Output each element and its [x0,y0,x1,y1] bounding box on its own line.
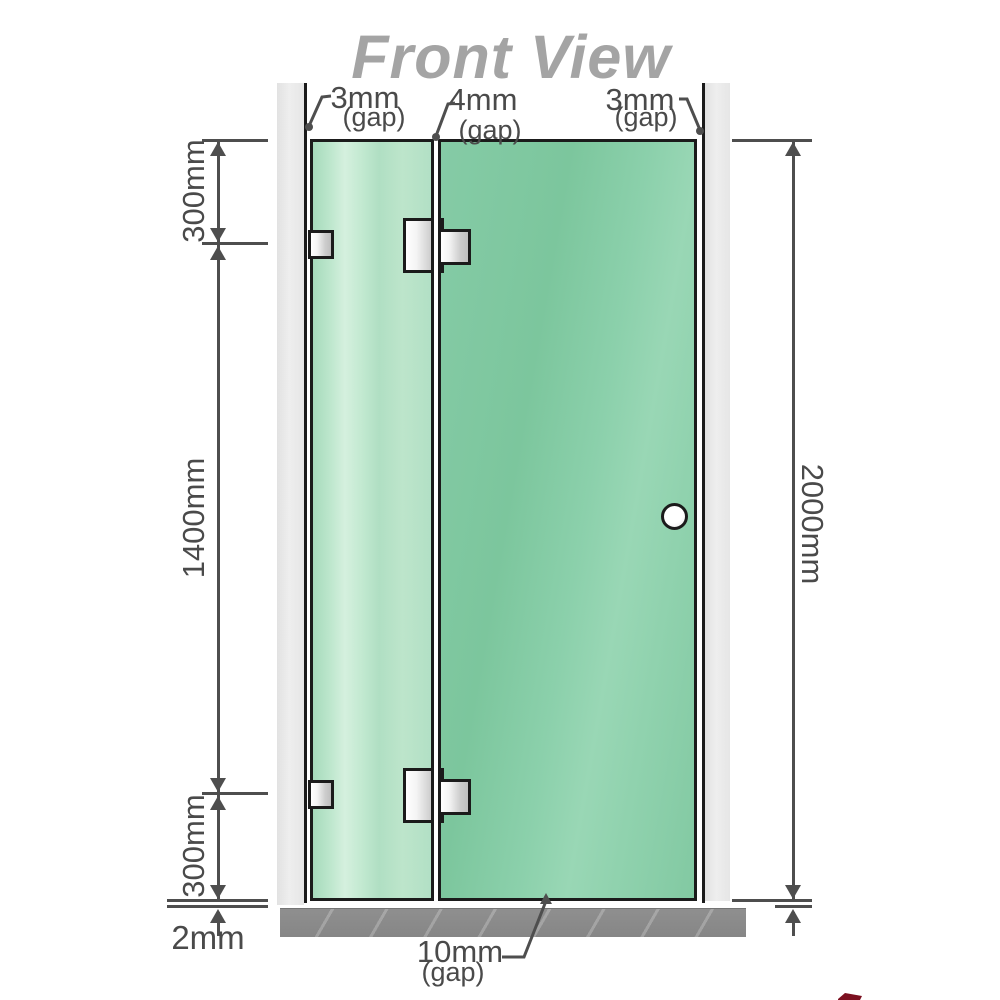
dim-line-1400 [217,245,220,792]
door-handle-knob [661,503,688,530]
gap-note-top-right: (gap) [614,104,677,131]
leader-gap-top-left [309,96,331,126]
dim-line-300-top [217,142,220,242]
gap-note-top-left: (gap) [342,104,405,131]
arrow-down-icon [210,228,226,242]
arrow-up-icon [210,246,226,260]
glass-door-panel [438,139,697,901]
wall-bracket-top-icon [308,230,334,259]
arrow-up-icon [210,142,226,156]
dim-tick [167,905,268,908]
dim-tick [775,905,812,908]
wall-left [277,83,304,905]
hinge-bottom-clamp-icon [438,779,471,815]
wall-left-edge [304,83,307,903]
gap-note-bottom: (gap) [421,959,484,986]
watermark-mark [838,993,862,1000]
arrow-down-icon [210,778,226,792]
dim-label-2mm: 2mm [171,921,244,954]
arrow-up-icon [785,909,801,923]
arrow-down-icon [785,885,801,899]
gap-label-top-center: 4mm [449,84,518,115]
arrow-up-icon [210,796,226,810]
arrow-up-icon [785,142,801,156]
leader-gap-top-right [679,99,700,130]
dim-tick [167,899,268,902]
wall-right [705,83,730,901]
gap-note-top-center: (gap) [458,117,521,144]
dim-line-300-bottom [217,795,220,899]
hinge-top-clamp-icon [438,229,471,265]
floor-base [280,908,746,937]
arrow-down-icon [210,885,226,899]
wall-bracket-bottom-icon [308,780,334,809]
dim-tick [732,899,812,902]
